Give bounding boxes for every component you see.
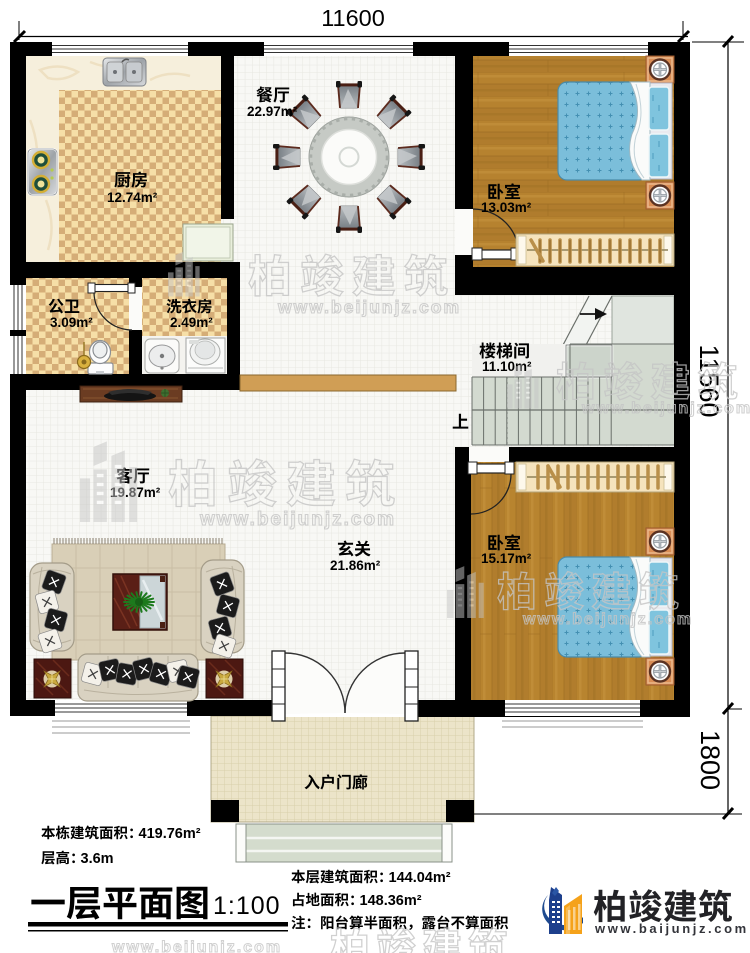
svg-text:3.6m: 3.6m [81, 851, 114, 867]
svg-text:www.baijunjz.com: www.baijunjz.com [594, 921, 749, 936]
svg-text:419.76m²: 419.76m² [139, 826, 201, 842]
svg-text:1800: 1800 [695, 730, 725, 790]
svg-text:3.09m²: 3.09m² [50, 315, 93, 330]
svg-text:12.74m²: 12.74m² [107, 190, 158, 205]
svg-text:www.beijunjz.com: www.beijunjz.com [522, 611, 693, 628]
svg-text:21.86m²: 21.86m² [330, 558, 381, 573]
svg-text:www.beijunjz.com: www.beijunjz.com [199, 509, 396, 530]
svg-text:2.49m²: 2.49m² [170, 315, 213, 330]
svg-text:1:100: 1:100 [213, 892, 281, 920]
svg-text:www.beijunjz.com: www.beijunjz.com [581, 400, 750, 417]
svg-text:www.beijunjz.com: www.beijunjz.com [277, 297, 461, 317]
svg-text:www.beijunjz.com: www.beijunjz.com [111, 939, 282, 953]
svg-text:22.97m²: 22.97m² [247, 104, 298, 119]
svg-text:148.36m²: 148.36m² [360, 893, 422, 909]
svg-text:11.10m²: 11.10m² [482, 359, 532, 374]
svg-text:13.03m²: 13.03m² [481, 200, 532, 215]
svg-text:11600: 11600 [321, 5, 385, 31]
svg-text:144.04m²: 144.04m² [389, 870, 451, 886]
svg-text:15.17m²: 15.17m² [481, 551, 532, 566]
